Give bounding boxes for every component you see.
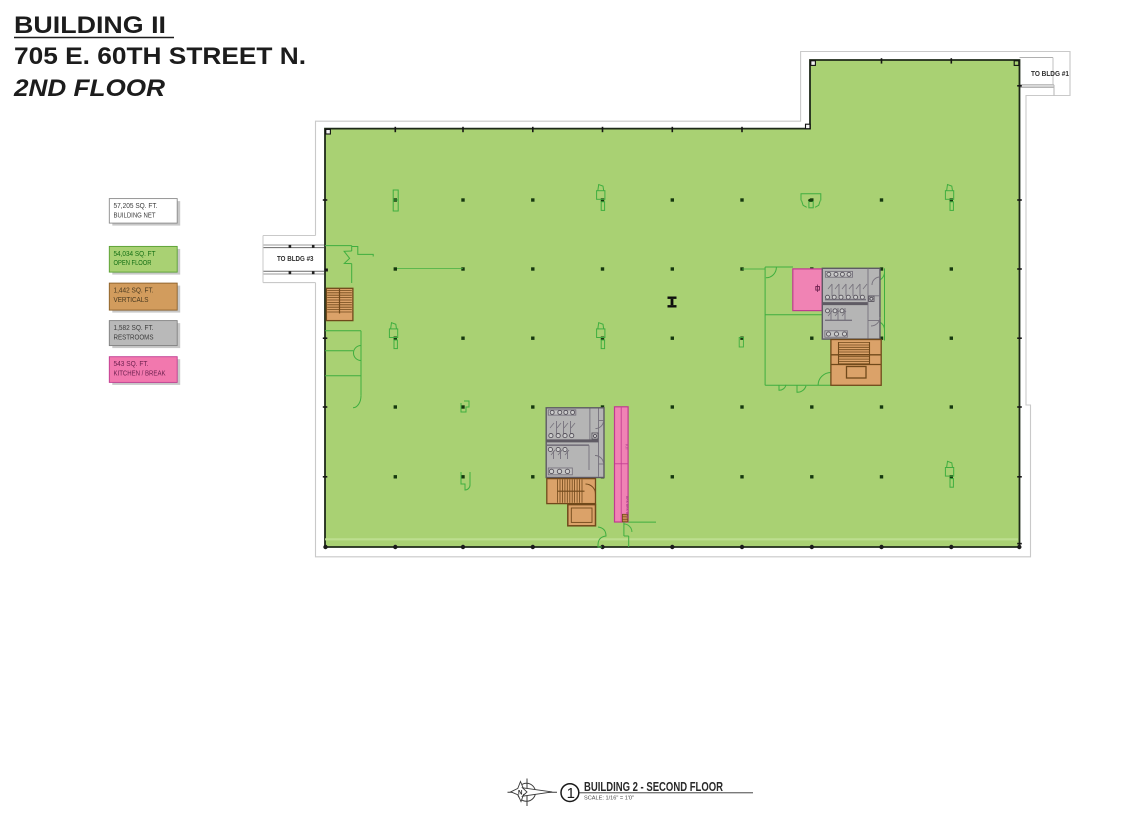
svg-text:N: N bbox=[518, 789, 523, 796]
svg-text:BRK BRK BRK: BRK BRK BRK bbox=[625, 496, 629, 520]
svg-text:VERTICALS: VERTICALS bbox=[114, 295, 149, 304]
svg-text:TO BLDG #3: TO BLDG #3 bbox=[277, 256, 314, 263]
svg-text:543 SQ. FT.: 543 SQ. FT. bbox=[114, 359, 149, 368]
svg-text:705 E. 60TH STREET N.: 705 E. 60TH STREET N. bbox=[14, 43, 306, 70]
svg-text:BUILDING 2 - SECOND FLOOR: BUILDING 2 - SECOND FLOOR bbox=[584, 779, 723, 794]
svg-text:SCALE: 1/16" = 1'0": SCALE: 1/16" = 1'0" bbox=[584, 796, 634, 802]
svg-text:KIT: KIT bbox=[624, 444, 629, 451]
svg-text:KITCHEN / BREAK: KITCHEN / BREAK bbox=[114, 369, 166, 378]
svg-text:OPEN FLOOR: OPEN FLOOR bbox=[114, 258, 152, 267]
svg-text:BUILDING NET: BUILDING NET bbox=[114, 210, 156, 219]
svg-text:BUILDING II: BUILDING II bbox=[14, 12, 166, 39]
svg-text:1,442 SQ. FT.: 1,442 SQ. FT. bbox=[114, 286, 154, 295]
svg-text:1,582 SQ. FT.: 1,582 SQ. FT. bbox=[114, 323, 154, 332]
svg-text:54,034 SQ. FT: 54,034 SQ. FT bbox=[114, 249, 156, 258]
svg-text:TO BLDG #1: TO BLDG #1 bbox=[1031, 71, 1069, 78]
svg-text:2ND FLOOR: 2ND FLOOR bbox=[13, 75, 165, 102]
svg-text:RESTROOMS: RESTROOMS bbox=[114, 332, 154, 341]
svg-text:57,205 SQ. FT.: 57,205 SQ. FT. bbox=[114, 201, 158, 210]
svg-text:1: 1 bbox=[567, 785, 575, 802]
